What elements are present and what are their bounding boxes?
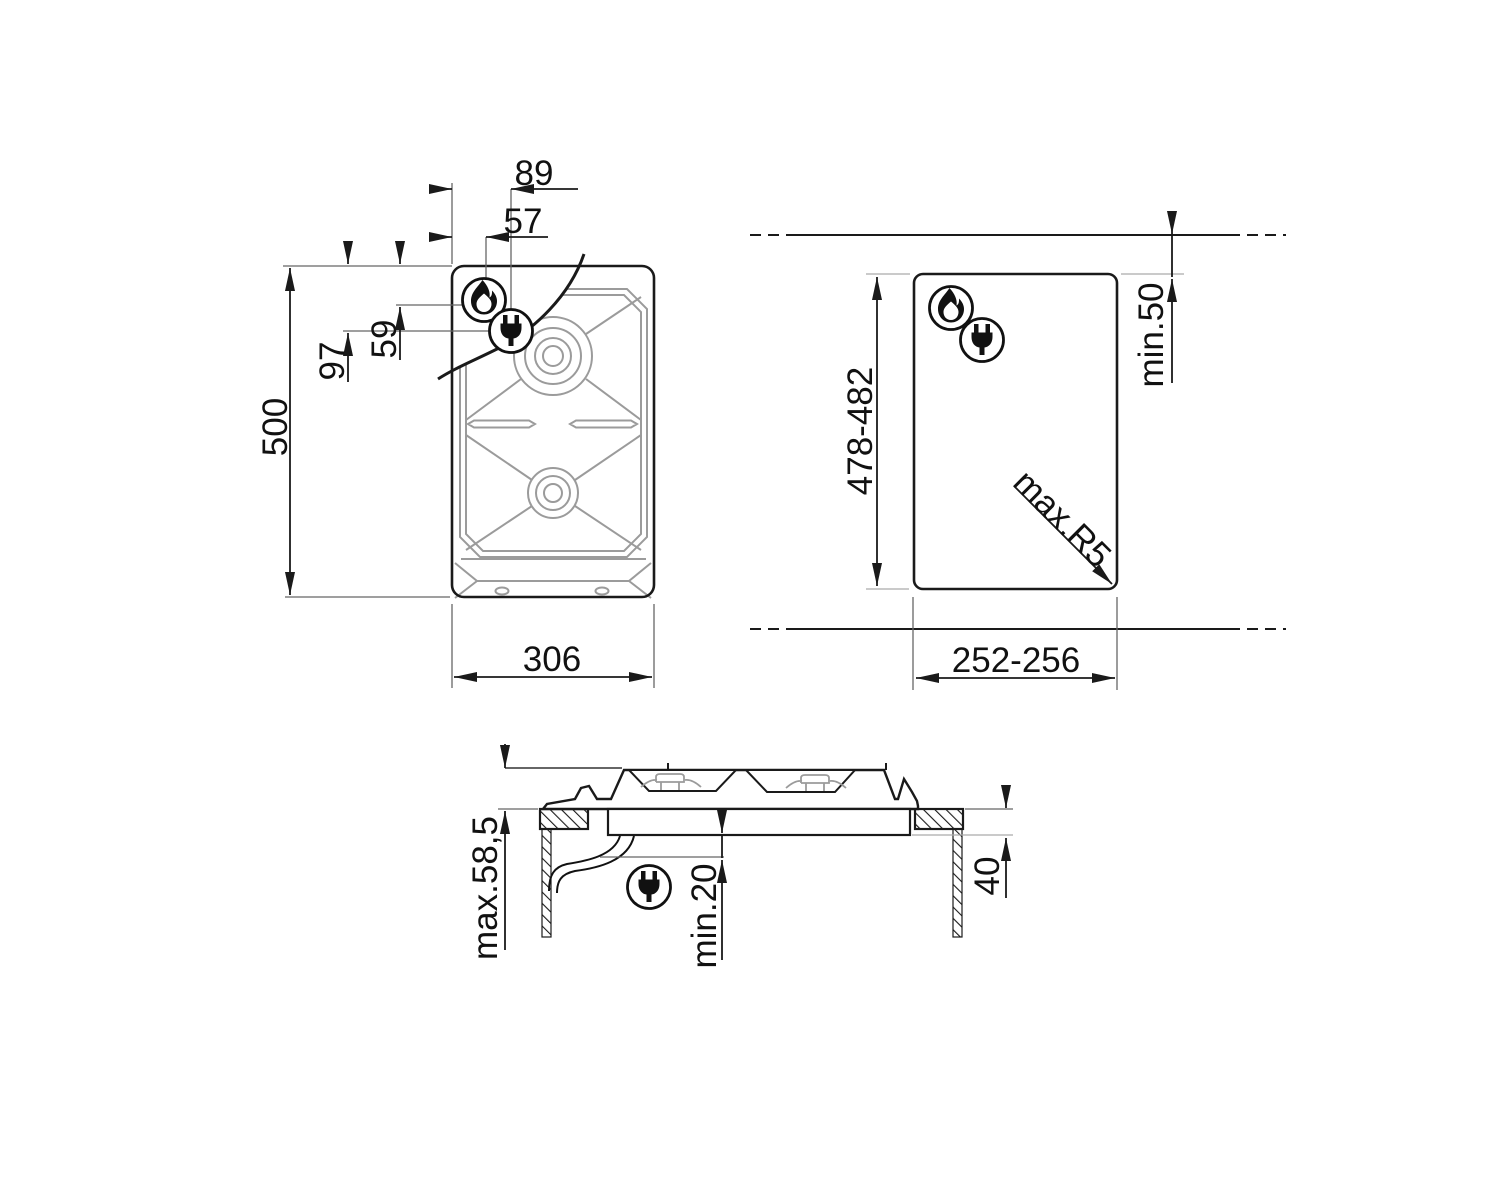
dim-label-89: 89 bbox=[515, 154, 554, 193]
dimension-plug-offset-x: 89 bbox=[432, 154, 578, 193]
dimension-flame-offset-y: 59 bbox=[365, 244, 404, 360]
installation-diagram: 89 57 97 59 500 306 bbox=[0, 0, 1500, 1200]
diagram-canvas: 89 57 97 59 500 306 bbox=[0, 0, 1500, 1200]
dim-label-478-482: 478-482 bbox=[841, 367, 880, 495]
dim-label-252-256: 252-256 bbox=[952, 641, 1080, 680]
cabinet-panel-right bbox=[953, 829, 962, 937]
worktop-section-left bbox=[540, 809, 588, 829]
dim-label-306: 306 bbox=[523, 640, 581, 679]
dim-label-maxR5: max.R5 bbox=[1006, 462, 1119, 575]
plug-icon bbox=[490, 310, 533, 353]
control-strip bbox=[455, 559, 651, 598]
worktop-section-right bbox=[915, 809, 963, 829]
flame-icon bbox=[930, 287, 973, 330]
dimension-plug-offset-y: 97 bbox=[313, 244, 352, 382]
dimension-rear-clearance: min.50 bbox=[1132, 212, 1172, 388]
dimension-flame-offset-x: 57 bbox=[430, 202, 548, 241]
hob-body bbox=[608, 809, 910, 835]
plug-icon bbox=[961, 319, 1004, 362]
plug-icon bbox=[628, 866, 671, 909]
control-knob bbox=[596, 588, 609, 595]
dimension-cutout-width: 252-256 bbox=[916, 641, 1115, 680]
dimension-hob-width: 306 bbox=[454, 640, 652, 679]
worktop-edge-dashes bbox=[750, 235, 1286, 629]
burner-well-left bbox=[629, 770, 736, 791]
dim-label-min20: min.20 bbox=[685, 863, 724, 968]
dim-label-40: 40 bbox=[968, 857, 1007, 896]
dimension-hob-height: 500 bbox=[256, 268, 295, 595]
plan-view: 89 57 97 59 500 306 bbox=[256, 154, 654, 688]
control-knob bbox=[496, 588, 509, 595]
dimension-corner-radius: max.R5 bbox=[1006, 462, 1119, 584]
dim-label-min50: min.50 bbox=[1132, 282, 1171, 387]
dim-label-57: 57 bbox=[504, 202, 543, 241]
cutout-view: 478-482 min.50 max.R5 252-256 bbox=[750, 212, 1286, 690]
dim-label-500: 500 bbox=[256, 398, 295, 456]
dim-label-97: 97 bbox=[313, 342, 352, 381]
dim-label-59: 59 bbox=[365, 320, 404, 359]
section-view: max.58,5 min.20 40 bbox=[466, 744, 1013, 969]
dimension-cutout-height: 478-482 bbox=[841, 277, 880, 586]
dimension-height-above-worktop: max.58,5 bbox=[466, 744, 505, 960]
dim-label-max585: max.58,5 bbox=[466, 816, 505, 960]
dimension-recess-depth: 40 bbox=[968, 786, 1007, 898]
